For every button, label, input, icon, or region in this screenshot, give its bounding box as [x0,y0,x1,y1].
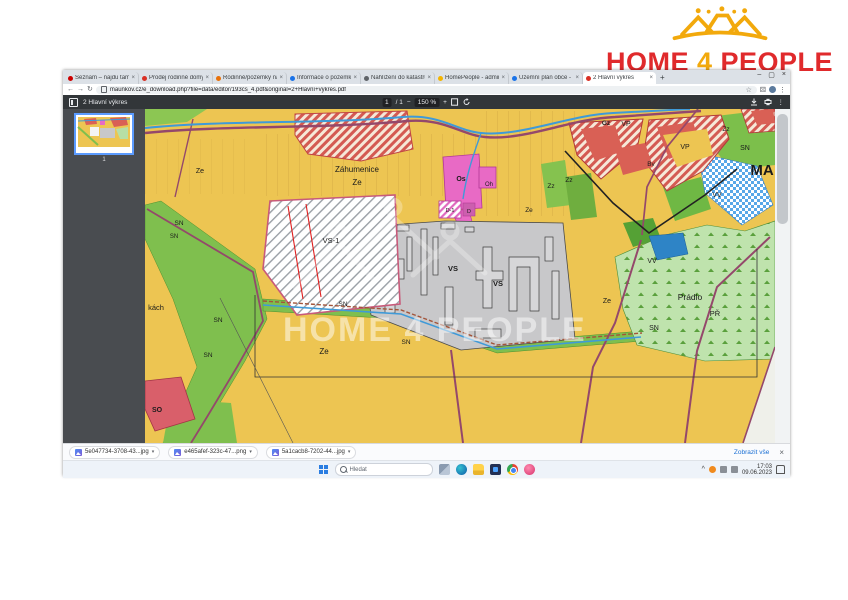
map-label: Prádlo [678,292,703,302]
windows-taskbar: Hledat ^ 17:03 09.06.2023 [63,460,790,478]
map-label: Záhumenice [335,165,380,174]
map-label: MA [750,162,773,179]
map-label: Ze [525,207,533,214]
map-label: VP [621,121,631,128]
tab-close-icon[interactable]: × [353,75,357,81]
page-thumbnail[interactable] [76,115,132,153]
map-label: SN [401,339,410,346]
map-label: SN [203,352,212,359]
tab-favicon [438,76,443,81]
maximize-button[interactable]: ▢ [768,71,775,79]
home4people-logo: HOME 4 PEOPLE [597,6,842,78]
map-label: VV [712,192,722,199]
map-label: Zz [565,177,572,184]
tab-strip-tabs: Seznam – najdu tam, co nezn×Prodej rodin… [65,72,656,84]
download-filename: 5a1cacb8-7202-44...jpg [282,449,345,455]
chevron-down-icon[interactable]: ▾ [249,449,252,455]
zoom-out-button[interactable]: − [407,99,411,106]
download-item[interactable]: e465afef-323c-47...png▾ [168,446,258,459]
crown-houses-icon [660,6,780,42]
tab-favicon [290,76,295,81]
zone-vs1-proposed [263,195,400,315]
minimize-button[interactable]: – [757,71,761,79]
back-button[interactable]: ← [67,84,74,95]
forward-button[interactable]: → [77,84,84,95]
start-button[interactable] [319,465,329,475]
map-label: VV [647,258,657,265]
fit-page-icon[interactable] [451,98,459,106]
browser-tab[interactable]: Územní plán obce - Oficiální st× [509,72,583,84]
photos-viewer-icon[interactable] [524,464,535,475]
map-label: Os [456,176,465,183]
map-label: Zz [547,183,554,190]
new-tab-button[interactable]: + [660,72,665,84]
watermark-text: HOME 4 PEOPLE [283,311,587,349]
vertical-scrollbar[interactable] [775,109,790,443]
show-all-downloads-link[interactable]: Zobrazit vše [734,449,769,456]
map-label: Ze [352,178,362,187]
browser-tab[interactable]: HomePeople - administrace× [435,72,509,84]
download-filename: 5e047734-3708-43...jpg [85,449,149,455]
taskbar-clock[interactable]: 17:03 09.06.2023 [742,464,772,476]
tab-favicon [68,76,73,81]
map-label: Gz [602,120,611,127]
map-page: HOME 4 PEOPLE ZáhumeniceZeZeOsOhZzZzZeGz… [145,109,775,443]
taskbar-search[interactable]: Hledat [335,463,433,476]
map-label: SN [740,145,750,152]
tab-title: 2 Hlavní výkres [593,75,647,81]
pdf-viewer-content: 1 [63,109,790,443]
zoom-level-input[interactable]: 150 % [415,98,439,107]
map-label: SN [213,317,222,324]
reload-button[interactable]: ↻ [87,84,93,95]
profile-avatar[interactable] [769,86,776,93]
volume-icon[interactable] [720,466,727,473]
tab-favicon [216,76,221,81]
browser-tab[interactable]: Nahlížení do katastru nemovito× [361,72,435,84]
file-image-icon [75,449,82,456]
chevron-down-icon[interactable]: ▾ [152,449,155,455]
browser-tab[interactable]: Informace o pozemku | Nahlíže× [287,72,361,84]
url-text: maunkov.cz/e_download.php?file=data/edit… [110,87,743,93]
map-label: SN [649,325,659,332]
map-label: D [467,209,471,215]
window-controls: – ▢ × [757,71,786,79]
downloads-shelf-right: Zobrazit vše × [734,448,784,457]
tab-close-icon[interactable]: × [427,75,431,81]
system-tray: ^ 17:03 09.06.2023 [702,462,785,477]
url-field[interactable]: maunkov.cz/e_download.php?file=data/edit… [96,86,757,94]
taskbar-center: Hledat [319,463,535,476]
browser-tab[interactable]: 2 Hlavní výkres× [583,72,656,84]
print-icon[interactable] [764,98,772,106]
edge-icon[interactable] [456,464,467,475]
tab-title: Rodinné/pozemky na prodej 2 [223,75,277,81]
browser-menu-icon[interactable]: ⋮ [779,86,786,94]
map-label: Bv [647,161,655,168]
page-number-input[interactable]: 1 [382,98,392,107]
pdf-toolbar-left: 2 Hlavní výkres [69,98,127,107]
zoom-in-button[interactable]: + [443,99,447,106]
tab-strip: Seznam – najdu tam, co nezn×Prodej rodin… [63,70,790,84]
tab-title: Nahlížení do katastru nemovito [371,75,425,81]
extensions-icon[interactable]: ⚄ [760,86,766,94]
photos-app-icon[interactable] [490,464,501,475]
map-label: kách [148,303,164,312]
tray-app-icon[interactable] [709,466,716,473]
chrome-icon[interactable] [507,464,518,475]
pdf-toolbar-right: ⋮ [750,98,785,106]
browser-tab[interactable]: Rodinné/pozemky na prodej 2× [213,72,287,84]
download-item[interactable]: 5a1cacb8-7202-44...jpg▾ [266,446,357,459]
browser-tab[interactable]: Seznam – najdu tam, co nezn× [65,72,139,84]
task-view-icon[interactable] [439,464,450,475]
tab-close-icon[interactable]: × [501,75,505,81]
map-label: Zz [722,126,729,133]
map-label: SN [174,220,183,227]
tray-chevron-icon[interactable]: ^ [702,466,705,473]
tab-close-icon[interactable]: × [575,75,579,81]
tab-title: Územní plán obce - Oficiální st [519,75,573,81]
tab-favicon [512,76,517,81]
pdf-page-controls: 1 / 1 − 150 % + [382,95,471,109]
browser-tab[interactable]: Prodej rodinné domy 80m, Bradčice× [139,72,213,84]
tab-title: HomePeople - administrace [445,75,499,81]
tab-favicon [586,76,591,81]
tab-favicon [142,76,147,81]
rotate-icon[interactable] [463,98,471,106]
close-shelf-icon[interactable]: × [779,448,784,457]
search-label: Hledat [350,467,367,473]
zoning-map[interactable]: HOME 4 PEOPLE ZáhumeniceZeZeOsOhZzZzZeGz… [145,109,775,443]
map-label: PŘ [710,309,721,318]
thumbnail-page-number: 1 [63,157,145,163]
map-label: VS [448,264,458,273]
map-label: Oh [485,182,493,188]
close-button[interactable]: × [782,71,786,79]
tab-close-icon[interactable]: × [279,75,283,81]
tab-favicon [364,76,369,81]
scanned-page: HOME 4 PEOPLE Seznam – najdu tam, co nez… [0,0,848,600]
padlock-icon [101,86,107,93]
search-icon [340,466,347,473]
downloads-shelf: 5e047734-3708-43...jpg▾e465afef-323c-47.… [63,443,790,460]
map-label: Ze [319,347,329,356]
file-image-icon [272,449,279,456]
clock-date: 09.06.2023 [742,470,772,476]
tab-close-icon[interactable]: × [649,75,653,81]
bookmark-star-icon[interactable]: ☆ [746,86,752,94]
map-label: SO [152,407,163,414]
tab-close-icon[interactable]: × [131,75,135,81]
download-item[interactable]: 5e047734-3708-43...jpg▾ [69,446,160,459]
map-label: D-1 [446,208,455,214]
map-label: Ze [603,298,611,305]
tab-title: Informace o pozemku | Nahlíže [297,75,351,81]
page-total-label: / 1 [396,99,403,106]
map-label: SN [338,301,347,308]
download-icon[interactable] [750,98,758,106]
tab-title: Prodej rodinné domy 80m, Bradčice [149,75,203,81]
map-label: SN [170,234,178,240]
map-label: VS [493,279,503,288]
map-label: Ze [196,168,204,175]
map-label: VP [680,144,690,151]
tab-close-icon[interactable]: × [205,75,209,81]
file-explorer-icon[interactable] [473,464,484,475]
pdf-document-title: 2 Hlavní výkres [83,99,127,106]
browser-window: Seznam – najdu tam, co nezn×Prodej rodin… [63,70,790,476]
scrollbar-thumb[interactable] [777,114,788,224]
notification-bell-icon[interactable] [776,465,785,474]
pdf-thumbnail-panel: 1 [63,109,145,443]
chevron-down-icon[interactable]: ▾ [348,449,351,455]
file-image-icon [174,449,181,456]
tab-title: Seznam – najdu tam, co nezn [75,75,129,81]
network-icon[interactable] [731,466,738,473]
download-chips: 5e047734-3708-43...jpg▾e465afef-323c-47.… [69,446,356,459]
download-filename: e465afef-323c-47...png [184,449,246,455]
address-bar: ← → ↻ maunkov.cz/e_download.php?file=dat… [63,84,790,95]
pdf-toolbar: 2 Hlavní výkres 1 / 1 − 150 % + [63,95,790,109]
pdf-menu-icon[interactable]: ⋮ [778,98,785,106]
sidebar-toggle-icon[interactable] [69,98,78,107]
map-label: VS-1 [323,236,340,245]
